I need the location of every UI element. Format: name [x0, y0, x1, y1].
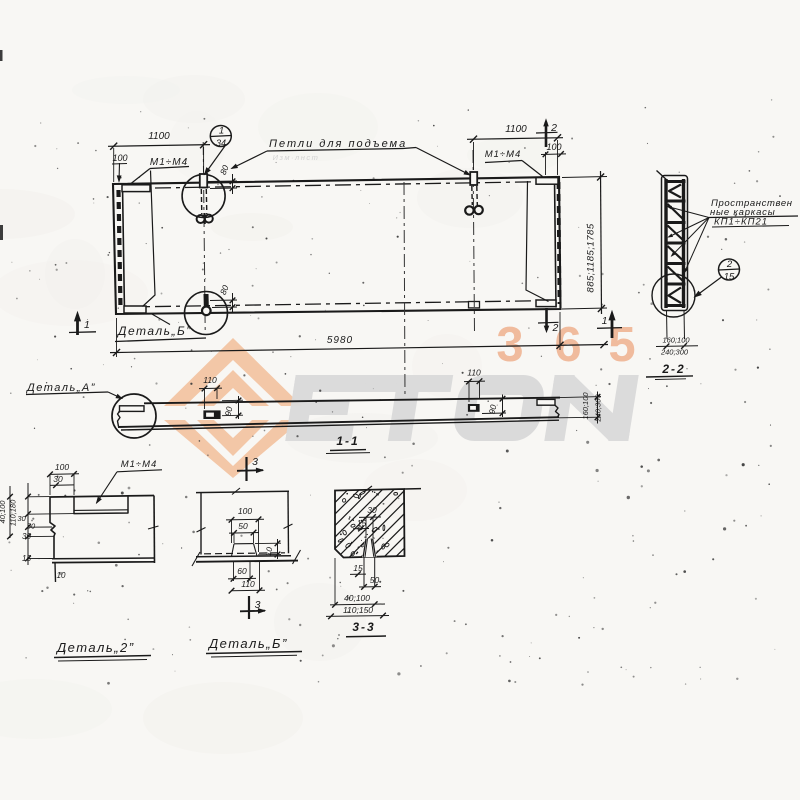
svg-text:100: 100 — [55, 462, 69, 472]
svg-text:50: 50 — [238, 521, 248, 531]
svg-text:885;1185;1785: 885;1185;1785 — [586, 223, 597, 292]
svg-text:110: 110 — [241, 579, 255, 589]
svg-text:40;100: 40;100 — [0, 500, 7, 524]
svg-text:Изм·лнст: Изм·лнст — [273, 153, 320, 162]
svg-text:15: 15 — [22, 554, 31, 563]
svg-text:М1÷М4: М1÷М4 — [121, 459, 158, 470]
svg-text:60: 60 — [237, 566, 247, 576]
svg-text:30: 30 — [22, 532, 31, 541]
svg-text:110: 110 — [203, 375, 217, 385]
svg-text:30: 30 — [367, 505, 377, 515]
svg-text:2: 2 — [726, 259, 733, 270]
svg-text:50: 50 — [27, 522, 36, 531]
svg-text:1-1: 1-1 — [336, 434, 359, 448]
svg-text:40;100: 40;100 — [344, 593, 370, 603]
svg-text:3-3: 3-3 — [352, 620, 375, 634]
svg-text:50: 50 — [370, 575, 380, 585]
svg-text:15: 15 — [353, 563, 363, 573]
svg-text:15: 15 — [357, 518, 367, 528]
svg-text:1: 1 — [602, 315, 608, 327]
svg-text:100: 100 — [238, 506, 252, 516]
svg-text:Деталь„Б”: Деталь„Б” — [116, 324, 192, 338]
svg-text:Деталь„2”: Деталь„2” — [55, 640, 135, 655]
svg-text:30: 30 — [17, 514, 26, 523]
svg-text:240;300: 240;300 — [660, 348, 689, 357]
svg-text:1100: 1100 — [148, 131, 170, 142]
svg-text:1: 1 — [219, 126, 224, 137]
svg-text:Деталь„Б”: Деталь„Б” — [207, 636, 288, 651]
svg-text:10: 10 — [57, 571, 66, 580]
svg-text:3: 3 — [496, 318, 523, 372]
svg-text:160;100: 160;100 — [581, 392, 590, 420]
svg-text:М1÷М4: М1÷М4 — [485, 149, 522, 160]
svg-text:5980: 5980 — [327, 335, 353, 346]
svg-text:Петли для подъема: Петли для подъема — [269, 138, 407, 150]
svg-text:100: 100 — [112, 153, 127, 163]
svg-text:100: 100 — [546, 142, 561, 152]
svg-text:2-2: 2-2 — [661, 362, 685, 376]
svg-text:3: 3 — [255, 599, 261, 611]
svg-text:110: 110 — [467, 368, 481, 378]
svg-text:2: 2 — [552, 322, 559, 334]
svg-text:3: 3 — [252, 456, 258, 468]
svg-text:2: 2 — [550, 122, 557, 134]
svg-text:1: 1 — [84, 319, 90, 331]
svg-text:110;180: 110;180 — [9, 499, 18, 526]
svg-text:1100: 1100 — [505, 124, 527, 135]
svg-text:110;150: 110;150 — [343, 605, 373, 615]
svg-text:240;300: 240;300 — [594, 394, 603, 423]
svg-text:15: 15 — [724, 272, 735, 283]
